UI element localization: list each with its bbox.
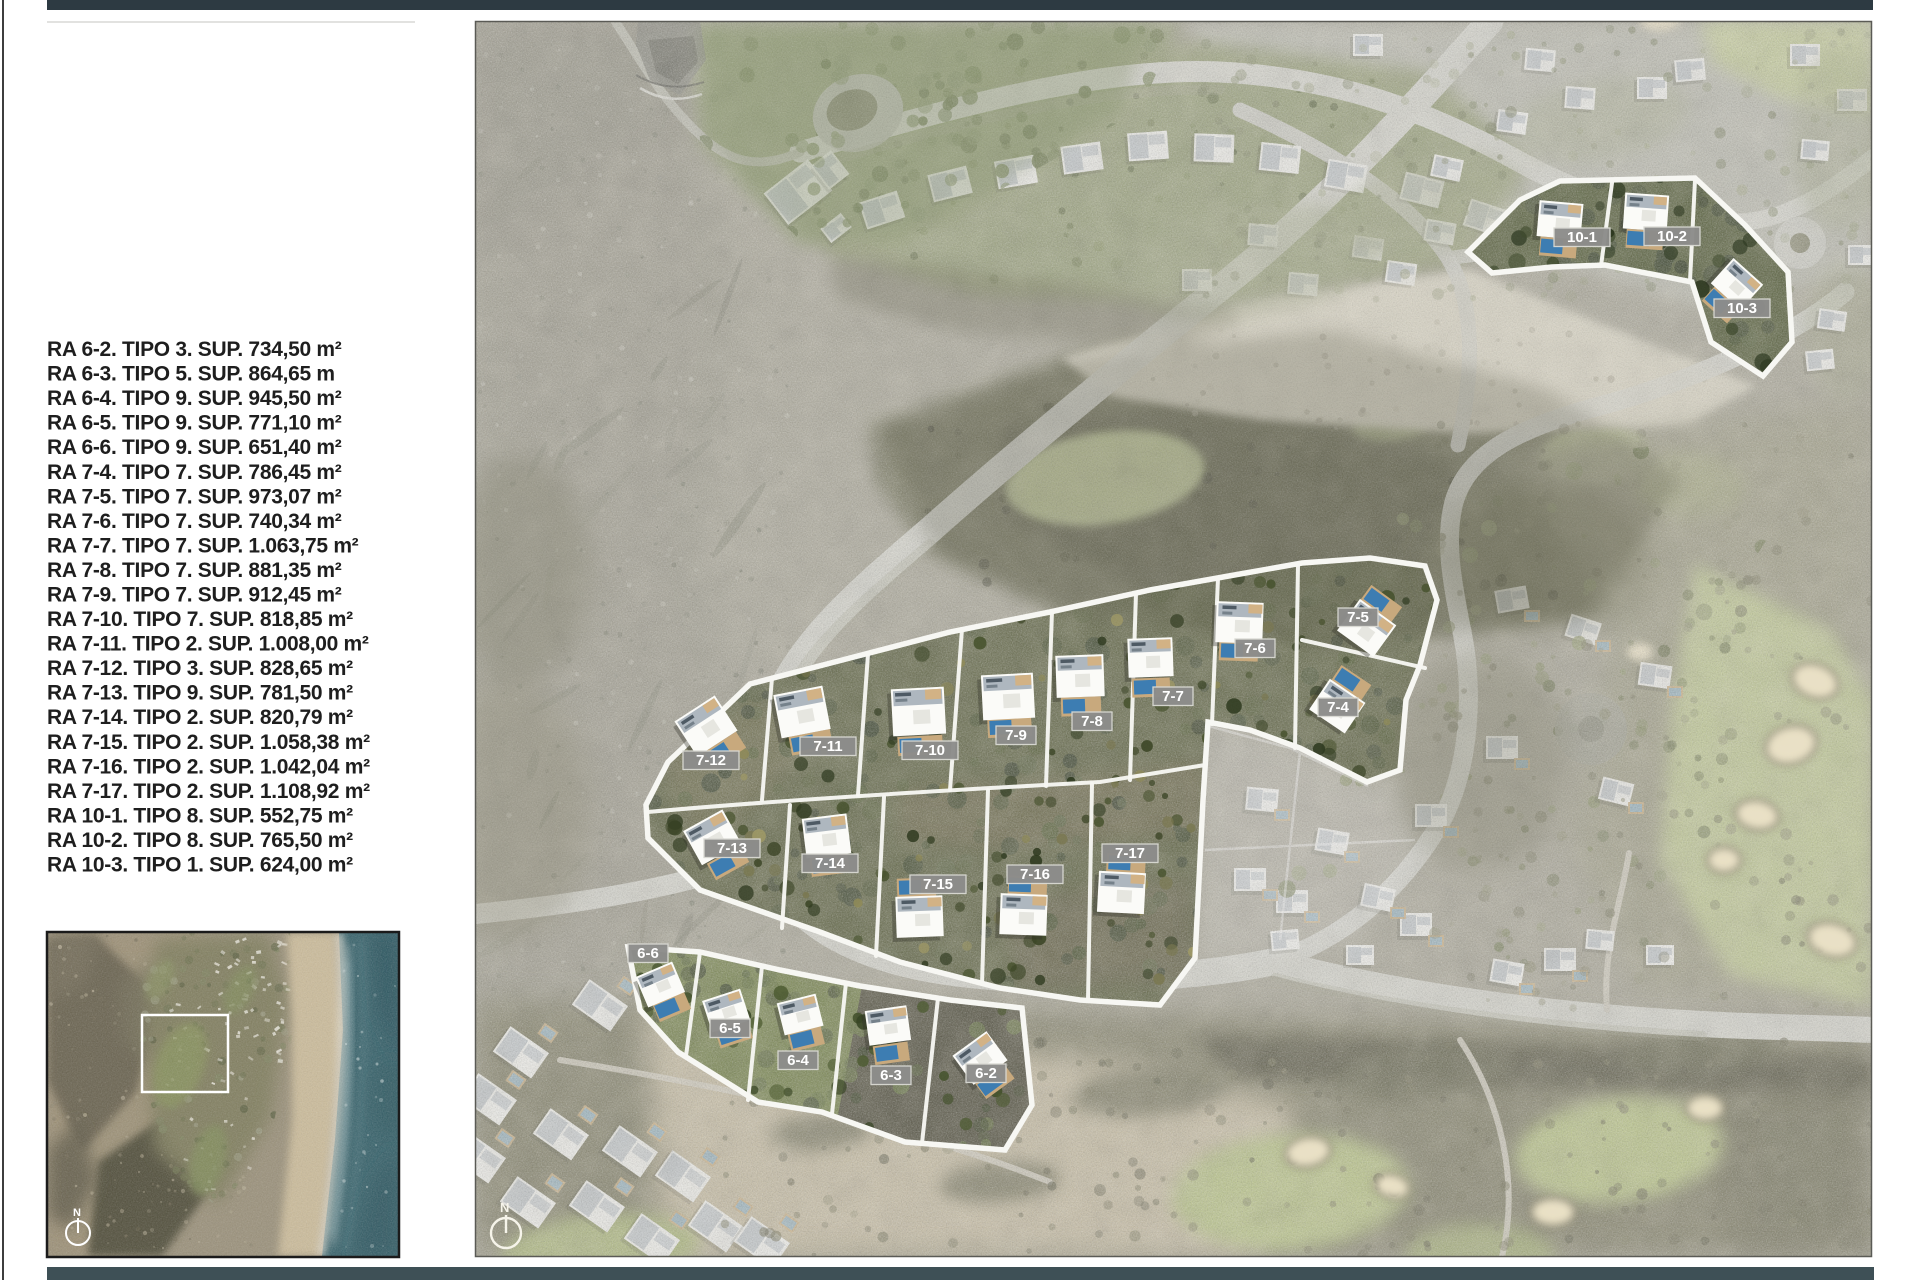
svg-text:7-15: 7-15 [923,876,953,893]
svg-text:RA 7-10. TIPO 7. SUP. 818,85 m: RA 7-10. TIPO 7. SUP. 818,85 m² [47,608,353,631]
svg-text:7-6: 7-6 [1244,640,1266,657]
svg-text:7-17: 7-17 [1115,845,1145,862]
svg-text:RA 6-2. TIPO 3. SUP. 734,50 m²: RA 6-2. TIPO 3. SUP. 734,50 m² [47,338,342,361]
svg-text:10-3: 10-3 [1727,300,1757,317]
svg-text:7-4: 7-4 [1327,699,1349,716]
svg-text:RA 7-6. TIPO 7. SUP. 740,34 m²: RA 7-6. TIPO 7. SUP. 740,34 m² [47,510,342,533]
svg-text:RA 7-16. TIPO 2. SUP. 1.042,04: RA 7-16. TIPO 2. SUP. 1.042,04 m² [47,755,370,778]
svg-text:RA 7-5. TIPO 7. SUP. 973,07 m²: RA 7-5. TIPO 7. SUP. 973,07 m² [47,485,342,508]
svg-text:RA 6-3. TIPO 5. SUP. 864,65 m: RA 6-3. TIPO 5. SUP. 864,65 m [47,363,335,386]
svg-text:10-1: 10-1 [1567,229,1597,246]
svg-text:N: N [500,1200,509,1215]
svg-text:6-3: 6-3 [880,1067,902,1084]
svg-text:RA 7-15. TIPO 2. SUP. 1.058,38: RA 7-15. TIPO 2. SUP. 1.058,38 m² [47,731,370,754]
svg-text:7-5: 7-5 [1347,609,1369,626]
svg-text:7-8: 7-8 [1081,713,1103,730]
svg-text:RA 7-4. TIPO 7. SUP. 786,45 m²: RA 7-4. TIPO 7. SUP. 786,45 m² [47,461,342,484]
svg-text:N: N [73,1207,81,1219]
svg-text:RA 10-1. TIPO 8. SUP. 552,75 m: RA 10-1. TIPO 8. SUP. 552,75 m² [47,805,353,828]
svg-text:7-9: 7-9 [1005,727,1027,744]
svg-text:RA 7-11. TIPO 2. SUP. 1.008,00: RA 7-11. TIPO 2. SUP. 1.008,00 m² [47,633,369,656]
svg-text:RA 7-13. TIPO 9. SUP. 781,50 m: RA 7-13. TIPO 9. SUP. 781,50 m² [47,682,353,705]
svg-text:7-12: 7-12 [696,752,726,769]
svg-text:RA 7-7. TIPO 7. SUP. 1.063,75: RA 7-7. TIPO 7. SUP. 1.063,75 m² [47,534,359,557]
svg-text:RA 10-3. TIPO 1. SUP. 624,00 m: RA 10-3. TIPO 1. SUP. 624,00 m² [47,854,353,877]
svg-text:RA 10-2. TIPO 8. SUP. 765,50 m: RA 10-2. TIPO 8. SUP. 765,50 m² [47,829,353,852]
svg-text:6-4: 6-4 [787,1052,809,1069]
svg-text:6-2: 6-2 [975,1065,997,1082]
svg-text:7-7: 7-7 [1162,688,1184,705]
svg-text:7-14: 7-14 [815,855,846,872]
svg-text:6-5: 6-5 [719,1020,741,1037]
svg-text:RA 6-5. TIPO 9. SUP. 771,10 m²: RA 6-5. TIPO 9. SUP. 771,10 m² [47,412,342,435]
svg-text:RA 6-6. TIPO 9. SUP. 651,40 m²: RA 6-6. TIPO 9. SUP. 651,40 m² [47,436,342,459]
svg-text:RA 7-9. TIPO 7. SUP. 912,45 m²: RA 7-9. TIPO 7. SUP. 912,45 m² [47,584,342,607]
svg-text:RA 7-17. TIPO 2. SUP. 1.108,92: RA 7-17. TIPO 2. SUP. 1.108,92 m² [47,780,370,803]
svg-text:RA 7-8. TIPO 7. SUP. 881,35 m²: RA 7-8. TIPO 7. SUP. 881,35 m² [47,559,342,582]
svg-text:RA 7-14. TIPO 2. SUP. 820,79 m: RA 7-14. TIPO 2. SUP. 820,79 m² [47,706,353,729]
svg-text:10-2: 10-2 [1657,228,1687,245]
svg-text:RA 6-4. TIPO 9. SUP. 945,50 m²: RA 6-4. TIPO 9. SUP. 945,50 m² [47,387,342,410]
svg-text:7-13: 7-13 [717,840,747,857]
svg-text:RA 7-12. TIPO 3. SUP. 828,65 m: RA 7-12. TIPO 3. SUP. 828,65 m² [47,657,353,680]
svg-text:7-16: 7-16 [1020,866,1050,883]
svg-text:7-11: 7-11 [813,738,842,755]
svg-text:6-6: 6-6 [637,945,659,962]
svg-text:7-10: 7-10 [915,742,945,759]
